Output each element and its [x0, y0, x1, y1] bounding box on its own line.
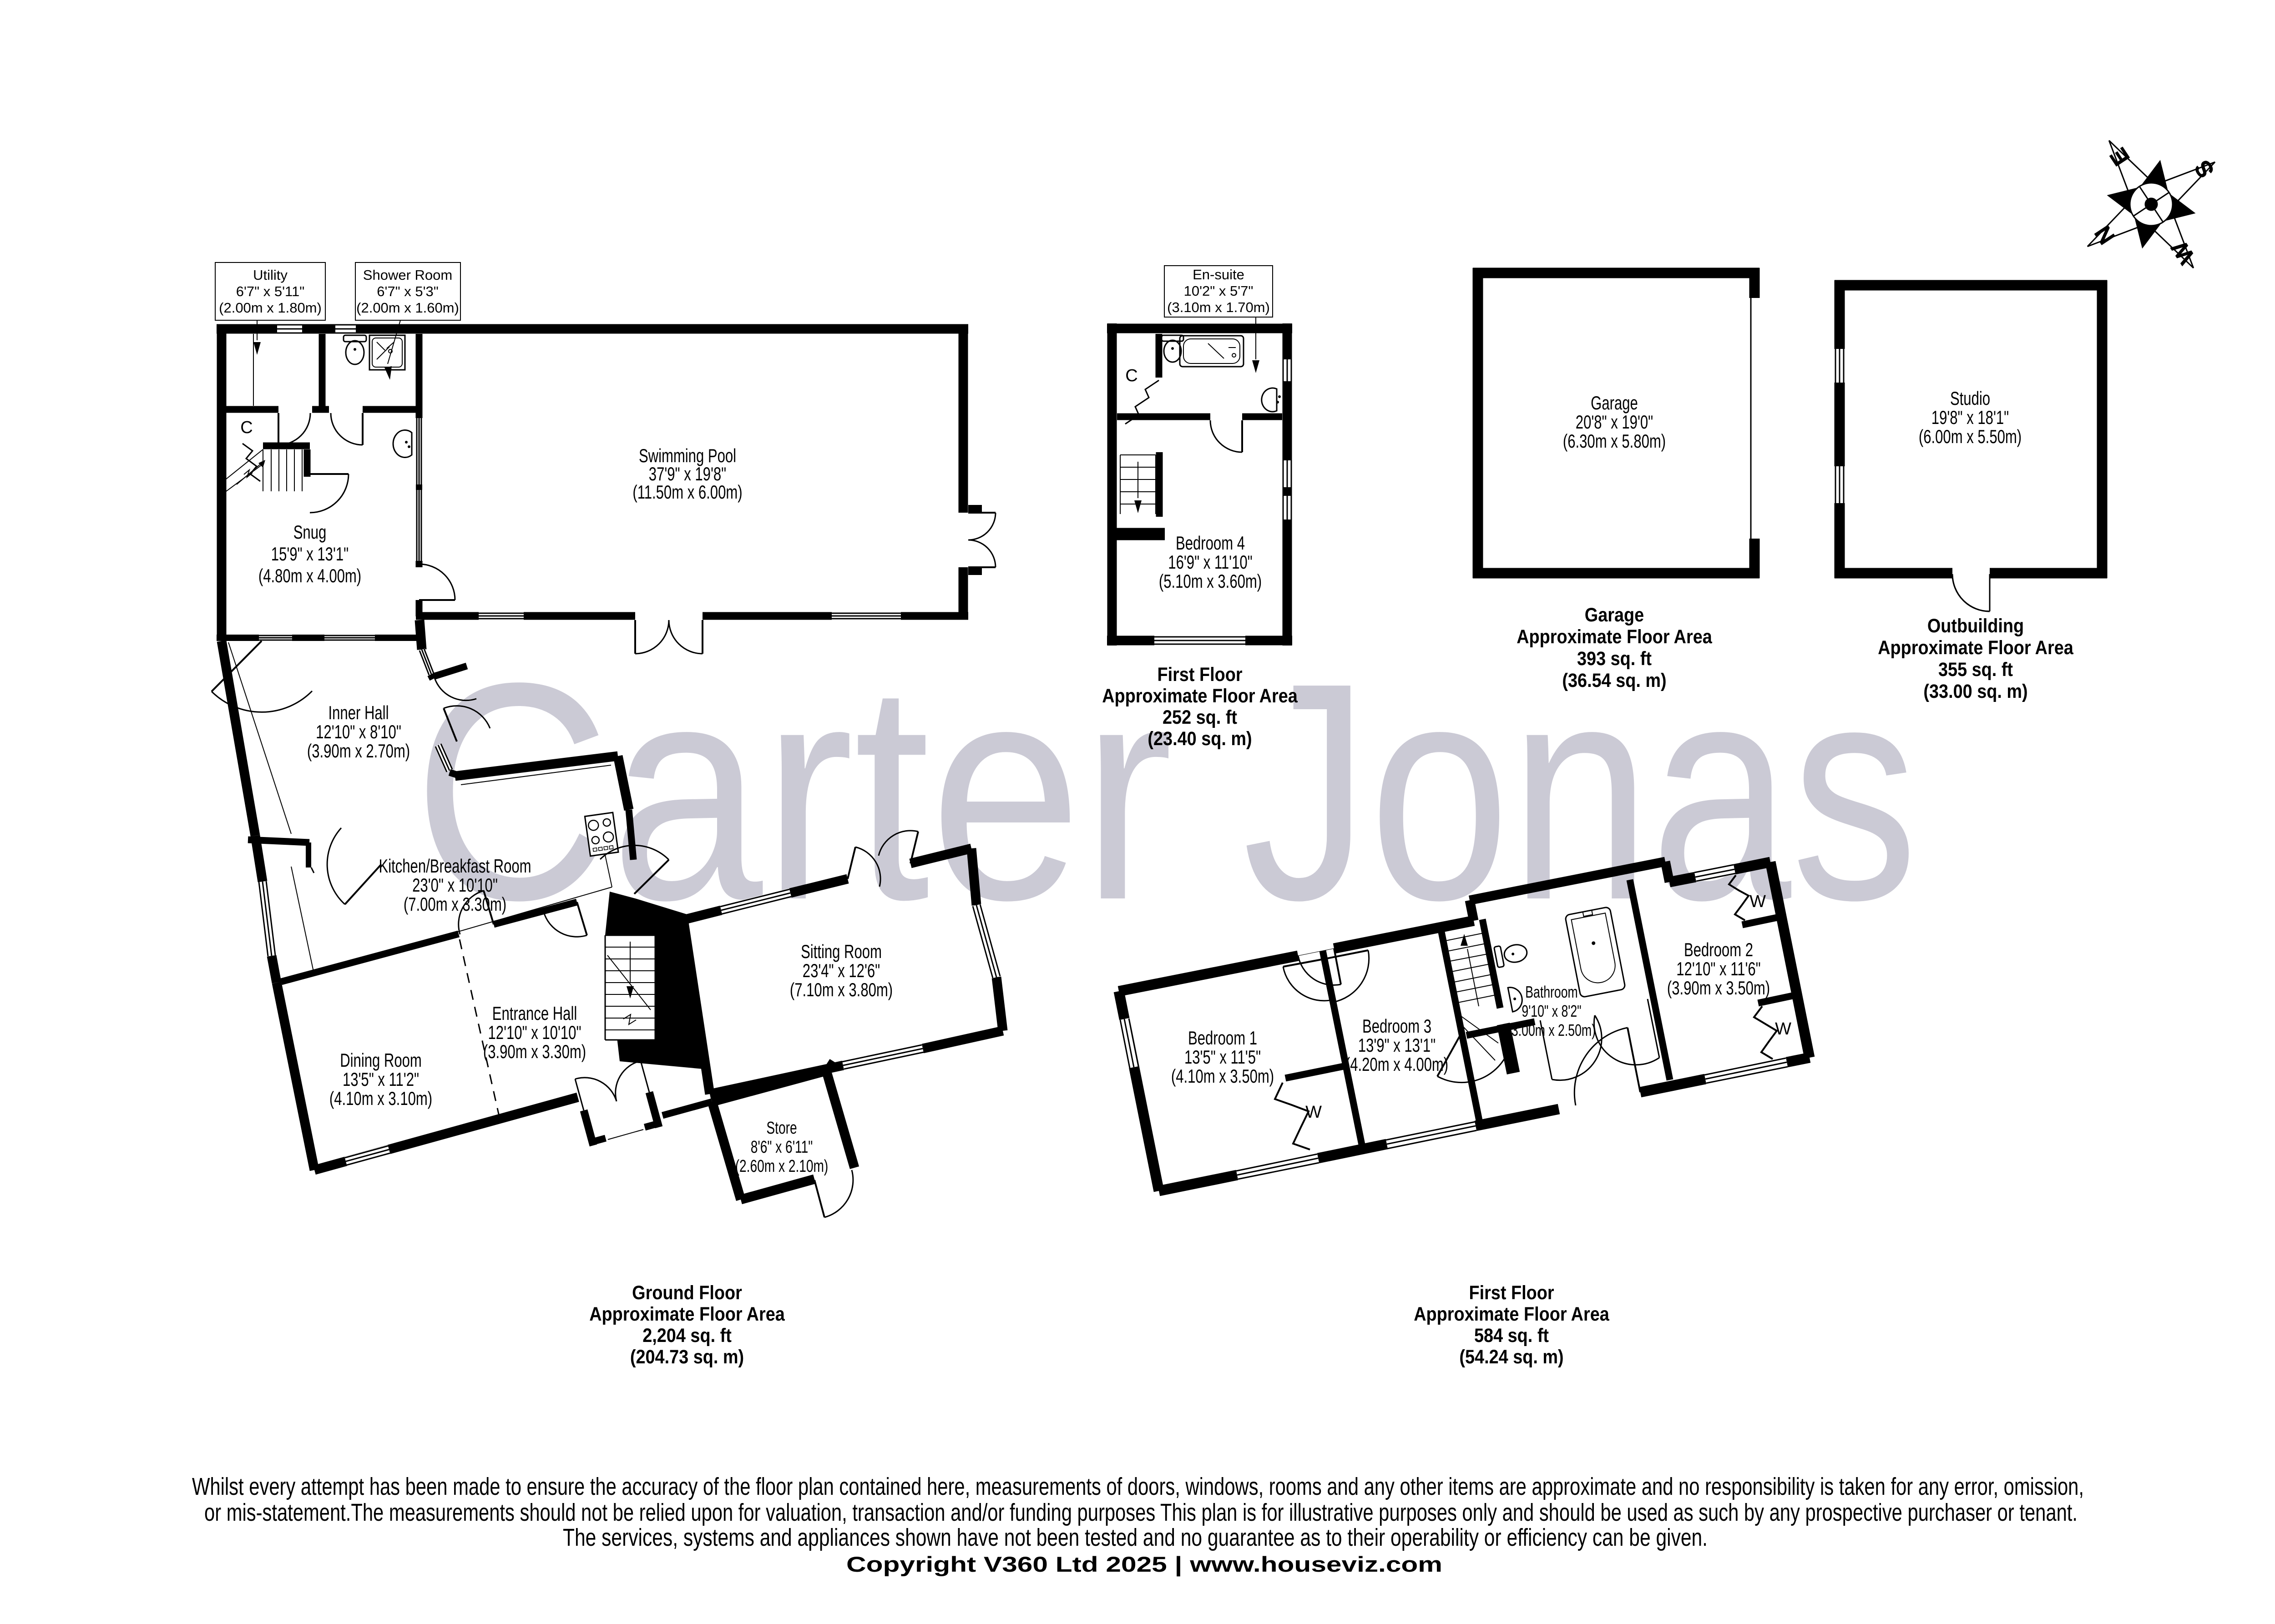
- svg-text:(33.00 sq. m): (33.00 sq. m): [1923, 680, 2027, 702]
- svg-text:16'9" x 11'10": 16'9" x 11'10": [1168, 551, 1252, 573]
- svg-text:(3.10m x 1.70m): (3.10m x 1.70m): [1167, 299, 1270, 315]
- svg-text:Utility: Utility: [253, 267, 288, 283]
- svg-text:Inner Hall: Inner Hall: [329, 702, 389, 723]
- svg-text:13'5" x 11'2": 13'5" x 11'2": [343, 1069, 419, 1090]
- svg-text:Approximate Floor Area: Approximate Floor Area: [1878, 636, 2073, 659]
- svg-text:23'4" x 12'6": 23'4" x 12'6": [803, 960, 880, 981]
- svg-text:12'10" x 8'10": 12'10" x 8'10": [316, 721, 401, 742]
- svg-text:9'10" x 8'2": 9'10" x 8'2": [1522, 1002, 1581, 1020]
- svg-text:Dining Room: Dining Room: [340, 1049, 422, 1071]
- svg-text:(2.00m x 1.80m): (2.00m x 1.80m): [219, 300, 322, 316]
- svg-text:12'10" x 10'10": 12'10" x 10'10": [488, 1022, 581, 1043]
- svg-text:Studio: Studio: [1950, 388, 1990, 409]
- svg-text:(204.73 sq. m): (204.73 sq. m): [630, 1346, 744, 1368]
- svg-text:(3.90m x 3.30m): (3.90m x 3.30m): [483, 1041, 586, 1062]
- svg-text:(2.60m x 2.10m): (2.60m x 2.10m): [735, 1157, 829, 1176]
- svg-text:Garage: Garage: [1591, 392, 1638, 414]
- svg-text:13'5" x 11'5": 13'5" x 11'5": [1184, 1046, 1261, 1068]
- svg-text:355 sq. ft: 355 sq. ft: [1938, 658, 2013, 681]
- svg-text:12'10" x 11'6": 12'10" x 11'6": [1676, 958, 1760, 979]
- svg-text:(11.50m x 6.00m): (11.50m x 6.00m): [632, 481, 742, 503]
- svg-text:Entrance Hall: Entrance Hall: [492, 1003, 577, 1024]
- svg-text:Bathroom: Bathroom: [1525, 983, 1577, 1001]
- svg-text:En-suite: En-suite: [1193, 267, 1244, 282]
- svg-text:2,204 sq. ft: 2,204 sq. ft: [642, 1324, 732, 1347]
- svg-text:13'9" x 13'1": 13'9" x 13'1": [1358, 1034, 1436, 1056]
- svg-text:(4.10m x 3.10m): (4.10m x 3.10m): [329, 1088, 432, 1109]
- svg-text:Approximate Floor Area: Approximate Floor Area: [1517, 625, 1712, 648]
- svg-text:10'2" x 5'7": 10'2" x 5'7": [1184, 283, 1254, 299]
- svg-text:Bedroom 2: Bedroom 2: [1684, 939, 1753, 960]
- svg-text:(2.00m x 1.60m): (2.00m x 1.60m): [356, 300, 459, 316]
- svg-text:(3.00m x 2.50m): (3.00m x 2.50m): [1507, 1021, 1596, 1039]
- svg-text:Garage: Garage: [1585, 604, 1644, 626]
- svg-text:First Floor: First Floor: [1469, 1281, 1554, 1304]
- svg-text:(36.54 sq. m): (36.54 sq. m): [1562, 669, 1666, 691]
- svg-text:Bedroom 1: Bedroom 1: [1188, 1027, 1257, 1049]
- svg-text:393 sq. ft: 393 sq. ft: [1577, 647, 1652, 670]
- svg-text:(7.10m x 3.80m): (7.10m x 3.80m): [790, 979, 893, 1000]
- svg-text:252 sq. ft: 252 sq. ft: [1163, 706, 1237, 728]
- svg-text:Approximate Floor Area: Approximate Floor Area: [1414, 1303, 1609, 1325]
- svg-text:584 sq. ft: 584 sq. ft: [1474, 1324, 1549, 1347]
- svg-text:8'6" x 6'11": 8'6" x 6'11": [751, 1138, 813, 1157]
- svg-text:(6.30m x 5.80m): (6.30m x 5.80m): [1563, 430, 1666, 452]
- svg-text:W: W: [1749, 892, 1766, 911]
- svg-text:Approximate Floor Area: Approximate Floor Area: [589, 1303, 785, 1325]
- svg-text:15'9" x 13'1": 15'9" x 13'1": [271, 543, 349, 565]
- svg-text:Bedroom 3: Bedroom 3: [1362, 1015, 1431, 1037]
- svg-text:C: C: [240, 418, 253, 437]
- svg-text:Approximate Floor Area: Approximate Floor Area: [1102, 685, 1298, 707]
- svg-text:The services, systems and appl: The services, systems and appliances sho…: [563, 1524, 1708, 1551]
- svg-text:(54.24 sq. m): (54.24 sq. m): [1459, 1346, 1563, 1368]
- svg-text:(6.00m x 5.50m): (6.00m x 5.50m): [1919, 426, 2022, 447]
- svg-text:Bedroom 4: Bedroom 4: [1176, 532, 1245, 554]
- svg-text:Snug: Snug: [293, 521, 327, 543]
- svg-text:W: W: [1775, 1019, 1791, 1039]
- svg-text:or mis-statement.The measureme: or mis-statement.The measurements should…: [204, 1499, 2078, 1526]
- svg-text:(3.90m x 2.70m): (3.90m x 2.70m): [307, 740, 410, 762]
- svg-text:23'0" x 10'10": 23'0" x 10'10": [412, 874, 498, 896]
- svg-text:19'8" x 18'1": 19'8" x 18'1": [1931, 407, 2009, 428]
- svg-text:Kitchen/Breakfast Room: Kitchen/Breakfast Room: [379, 855, 531, 877]
- svg-text:6'7" x 5'11": 6'7" x 5'11": [236, 283, 304, 299]
- svg-text:Outbuilding: Outbuilding: [1927, 615, 2024, 637]
- svg-text:(4.80m x 4.00m): (4.80m x 4.00m): [258, 565, 361, 586]
- svg-text:(5.10m x 3.60m): (5.10m x 3.60m): [1159, 570, 1262, 592]
- svg-text:W: W: [1305, 1103, 1322, 1122]
- svg-text:Ground Floor: Ground Floor: [632, 1281, 742, 1304]
- svg-text:20'8" x 19'0": 20'8" x 19'0": [1576, 411, 1653, 433]
- svg-text:First Floor: First Floor: [1157, 663, 1242, 686]
- svg-text:(7.00m x 3.30m): (7.00m x 3.30m): [404, 893, 506, 915]
- svg-text:Sitting Room: Sitting Room: [801, 941, 882, 962]
- svg-text:(3.90m x 3.50m): (3.90m x 3.50m): [1667, 977, 1770, 999]
- svg-text:Copyright V360 Ltd 2025 | www.: Copyright V360 Ltd 2025 | www.houseviz.c…: [846, 1552, 1442, 1576]
- svg-text:Whilst every attempt has been: Whilst every attempt has been made to en…: [192, 1473, 2084, 1500]
- svg-text:C: C: [1125, 366, 1137, 385]
- svg-text:Store: Store: [766, 1119, 797, 1138]
- svg-text:(4.10m x 3.50m): (4.10m x 3.50m): [1171, 1065, 1274, 1087]
- svg-text:Shower Room: Shower Room: [363, 267, 452, 283]
- svg-text:6'7" x 5'3": 6'7" x 5'3": [377, 283, 439, 299]
- svg-text:(23.40 sq. m): (23.40 sq. m): [1148, 727, 1252, 750]
- svg-text:(4.20m x 4.00m): (4.20m x 4.00m): [1345, 1054, 1448, 1075]
